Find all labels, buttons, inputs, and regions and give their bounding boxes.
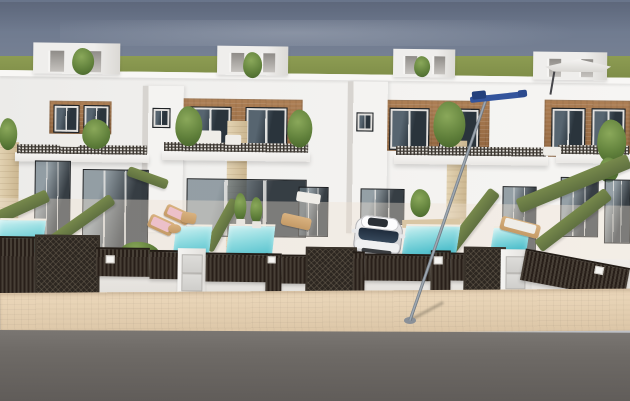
gate-post [352,251,365,295]
fence-panel [149,250,179,279]
side-table [168,224,181,233]
house-1-upper-window [53,105,79,133]
roof-door-opening [261,53,275,72]
roof-door-opening [432,56,445,74]
fence-panel [364,253,430,281]
fence-panel [281,254,306,283]
sidewalk [0,289,630,335]
road [0,330,630,401]
tower-window [356,112,373,131]
tower-window [152,108,170,128]
house-3-upper-window [389,108,430,150]
house-number-plaque [434,256,443,264]
meter-door [181,273,202,291]
house-number-plaque [106,255,115,263]
balcony-chair [225,135,241,145]
plant-pot [252,221,261,228]
balcony-sofa [59,137,79,147]
car-mirror [352,228,358,233]
fence-panel [0,236,35,296]
roof-door-opening [229,53,244,72]
fence-panel [96,247,150,277]
plant-pot [236,219,245,226]
house-number-plaque [268,256,276,263]
balcony-sofa [543,147,561,156]
render-canvas [0,0,630,401]
driveway-gate [305,247,357,297]
meter-door [182,254,203,273]
balcony-railing-1 [17,144,147,155]
roof-door-opening [48,51,64,72]
car-mirror [399,234,405,239]
lamp-fixture [472,90,487,99]
mesh-gate [34,234,100,299]
lamp-fixture-end [518,90,528,98]
fence-panel [205,253,267,283]
house-number-plaque [594,266,604,276]
